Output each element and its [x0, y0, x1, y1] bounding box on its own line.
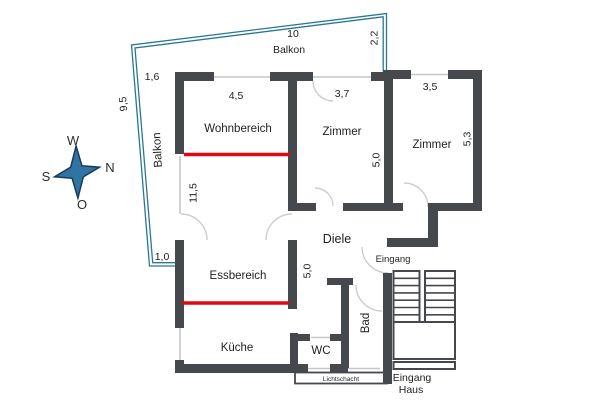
wall-segment	[293, 334, 310, 341]
door-arc-balcony-essbereich	[181, 214, 207, 240]
dim-balkon-left: 9,5	[117, 96, 130, 112]
room-label-kueche: Küche	[221, 342, 254, 354]
wall-segment	[383, 273, 392, 384]
windows	[180, 75, 448, 369]
door-arc-bad	[356, 285, 382, 311]
dim-zimmer2-width: 3,5	[423, 81, 438, 93]
label-balkon-top: Balkon	[273, 44, 305, 56]
dim-living-length: 11,5	[188, 183, 200, 203]
dim-zimmer1-width: 3,7	[335, 88, 350, 100]
wall-segment	[330, 334, 342, 341]
dim-wohnbereich-width: 4,5	[229, 90, 244, 102]
wall-segment	[327, 278, 353, 285]
floor-plan: W N S O Wohnbereich Zimmer Zimmer Essber…	[0, 0, 600, 400]
staircase	[394, 271, 456, 369]
room-label-essbereich: Essbereich	[210, 270, 267, 282]
wall-segment	[288, 240, 297, 309]
dim-balkon-door: 1,0	[155, 251, 170, 263]
room-label-wohnbereich: Wohnbereich	[204, 123, 272, 135]
balcony-outline	[132, 14, 387, 267]
room-label-zimmer-2: Zimmer	[413, 139, 452, 151]
compass-rose-icon: W N S O	[42, 133, 115, 212]
wall-segment	[288, 72, 297, 211]
door-arc-zimmer2	[404, 183, 428, 207]
door-arc-essbereich	[266, 214, 292, 240]
door-arc-zimmer1	[315, 188, 333, 206]
balcony-outer-line	[132, 14, 387, 267]
room-label-wc: WC	[311, 345, 330, 357]
compass-label-west: W	[67, 133, 80, 148]
door-arc-zimmer1-balcony	[313, 81, 333, 101]
room-label-bad: Bad	[360, 313, 372, 333]
wall-segment	[175, 364, 308, 373]
room-label-diele: Diele	[323, 232, 352, 246]
label-eingang-haus-line2: Haus	[399, 384, 424, 396]
compass-label-south: S	[42, 169, 51, 184]
wall-segment	[428, 203, 482, 211]
balcony-inner-line	[135, 17, 383, 263]
stair-landing	[394, 322, 456, 359]
dim-balkon-length: 10	[287, 28, 299, 40]
room-label-zimmer-1: Zimmer	[323, 126, 362, 138]
compass-star	[55, 146, 100, 198]
wall-segment	[393, 203, 403, 211]
wall-segment	[343, 203, 393, 211]
compass-label-east: O	[77, 197, 87, 212]
wall-segment	[175, 72, 184, 154]
dim-top-left-offset: 1,6	[145, 71, 160, 83]
label-eingang-haus-line1: Eingang	[393, 372, 432, 384]
label-balkon-left: Balkon	[151, 132, 165, 168]
dim-zimmer1-depth: 5,0	[371, 153, 383, 168]
dim-diele-length: 5,0	[302, 264, 314, 279]
label-eingang-wohnung: Eingang	[376, 254, 411, 265]
wall-segment	[175, 240, 184, 328]
wall-segment	[297, 203, 316, 211]
wall-segment	[387, 238, 438, 247]
stair-base-step	[394, 362, 456, 369]
dim-balkon-right: 2,2	[369, 31, 381, 46]
wall-segment	[473, 70, 482, 210]
label-lichtschacht: Lichtschacht	[323, 376, 359, 383]
compass-label-north: N	[105, 160, 114, 175]
wall-segment	[341, 282, 349, 368]
dim-zimmer2-depth: 5,3	[462, 132, 474, 147]
wall-segment	[384, 72, 393, 211]
room-labels: Wohnbereich Zimmer Zimmer Essbereich Küc…	[151, 44, 452, 396]
